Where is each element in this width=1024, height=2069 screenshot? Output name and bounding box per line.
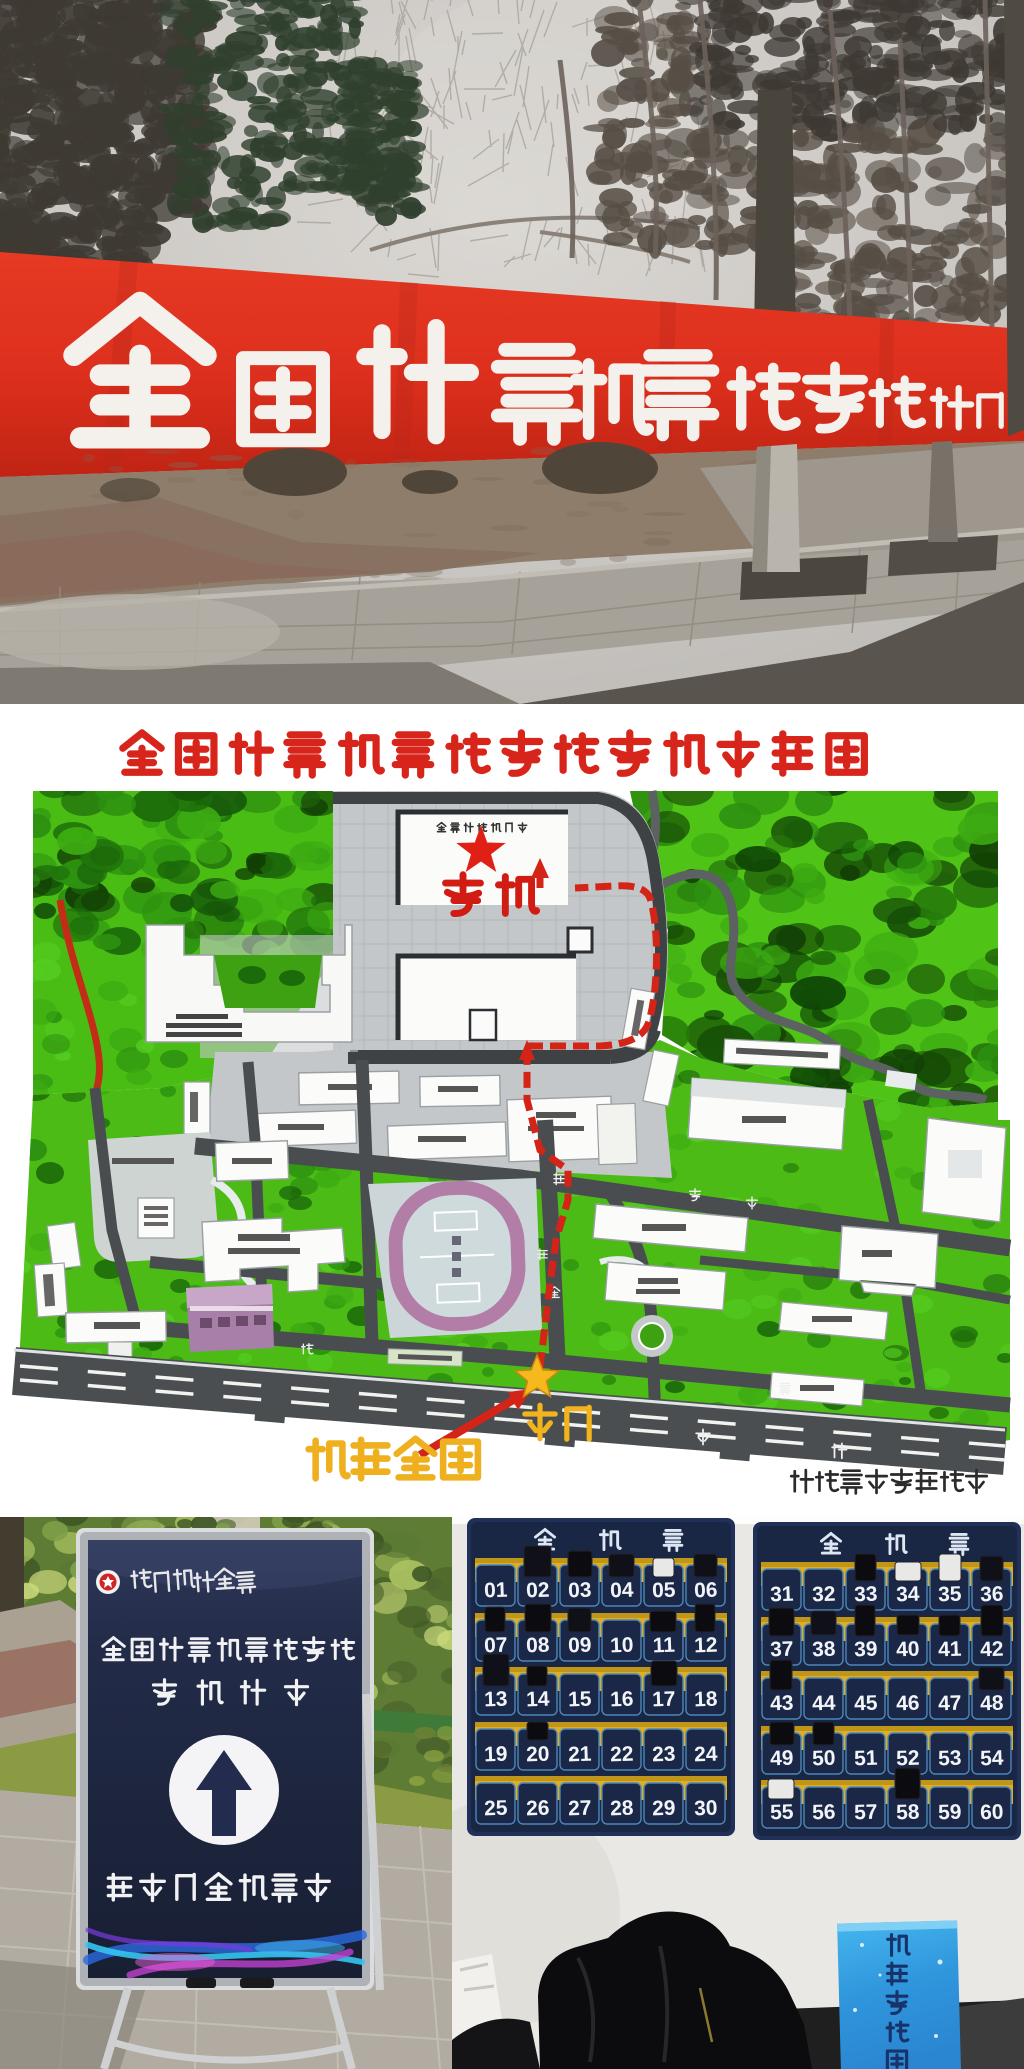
- svg-text:57: 57: [854, 1801, 878, 1825]
- svg-text:34: 34: [896, 1583, 920, 1607]
- svg-text:39: 39: [854, 1638, 878, 1662]
- svg-text:05: 05: [652, 1579, 676, 1603]
- svg-text:29: 29: [652, 1797, 676, 1821]
- svg-text:17: 17: [652, 1688, 676, 1712]
- svg-text:48: 48: [980, 1692, 1004, 1716]
- svg-text:58: 58: [896, 1801, 920, 1825]
- svg-text:33: 33: [854, 1583, 878, 1607]
- svg-text:26: 26: [526, 1797, 550, 1821]
- svg-text:11: 11: [652, 1634, 675, 1658]
- svg-text:23: 23: [652, 1743, 676, 1767]
- svg-text:36: 36: [980, 1583, 1004, 1607]
- svg-text:35: 35: [938, 1583, 962, 1607]
- svg-text:45: 45: [854, 1692, 878, 1716]
- svg-text:53: 53: [938, 1747, 962, 1771]
- svg-text:52: 52: [896, 1747, 920, 1771]
- svg-text:19: 19: [484, 1743, 508, 1767]
- svg-text:03: 03: [568, 1579, 592, 1603]
- svg-text:28: 28: [610, 1797, 634, 1821]
- svg-text:25: 25: [484, 1797, 508, 1821]
- svg-text:51: 51: [854, 1747, 878, 1771]
- svg-text:01: 01: [484, 1579, 508, 1603]
- svg-text:16: 16: [610, 1688, 634, 1712]
- svg-text:60: 60: [980, 1801, 1004, 1825]
- svg-text:02: 02: [526, 1579, 550, 1603]
- svg-text:06: 06: [694, 1579, 718, 1603]
- svg-text:08: 08: [526, 1634, 550, 1658]
- svg-text:30: 30: [694, 1797, 718, 1821]
- svg-text:46: 46: [896, 1692, 920, 1716]
- svg-text:42: 42: [980, 1638, 1004, 1662]
- svg-text:43: 43: [770, 1692, 794, 1716]
- svg-text:24: 24: [694, 1743, 718, 1767]
- svg-text:20: 20: [526, 1743, 550, 1767]
- svg-text:14: 14: [526, 1688, 550, 1712]
- svg-text:59: 59: [938, 1801, 962, 1825]
- svg-text:50: 50: [812, 1747, 836, 1771]
- svg-text:54: 54: [980, 1747, 1004, 1771]
- svg-text:15: 15: [568, 1688, 592, 1712]
- svg-text:09: 09: [568, 1634, 592, 1658]
- svg-text:47: 47: [938, 1692, 962, 1716]
- svg-text:12: 12: [694, 1634, 718, 1658]
- svg-text:27: 27: [568, 1797, 592, 1821]
- svg-text:13: 13: [484, 1688, 508, 1712]
- svg-text:38: 38: [812, 1638, 836, 1662]
- svg-text:10: 10: [610, 1634, 634, 1658]
- svg-text:44: 44: [812, 1692, 836, 1716]
- svg-text:21: 21: [568, 1743, 592, 1767]
- svg-text:40: 40: [896, 1638, 920, 1662]
- svg-text:04: 04: [610, 1579, 634, 1603]
- svg-text:31: 31: [770, 1583, 794, 1607]
- svg-text:56: 56: [812, 1801, 836, 1825]
- svg-text:37: 37: [770, 1638, 794, 1662]
- svg-text:41: 41: [938, 1638, 962, 1662]
- svg-text:18: 18: [694, 1688, 718, 1712]
- svg-text:55: 55: [770, 1801, 794, 1825]
- svg-text:49: 49: [770, 1747, 794, 1771]
- svg-text:32: 32: [812, 1583, 836, 1607]
- svg-text:22: 22: [610, 1743, 634, 1767]
